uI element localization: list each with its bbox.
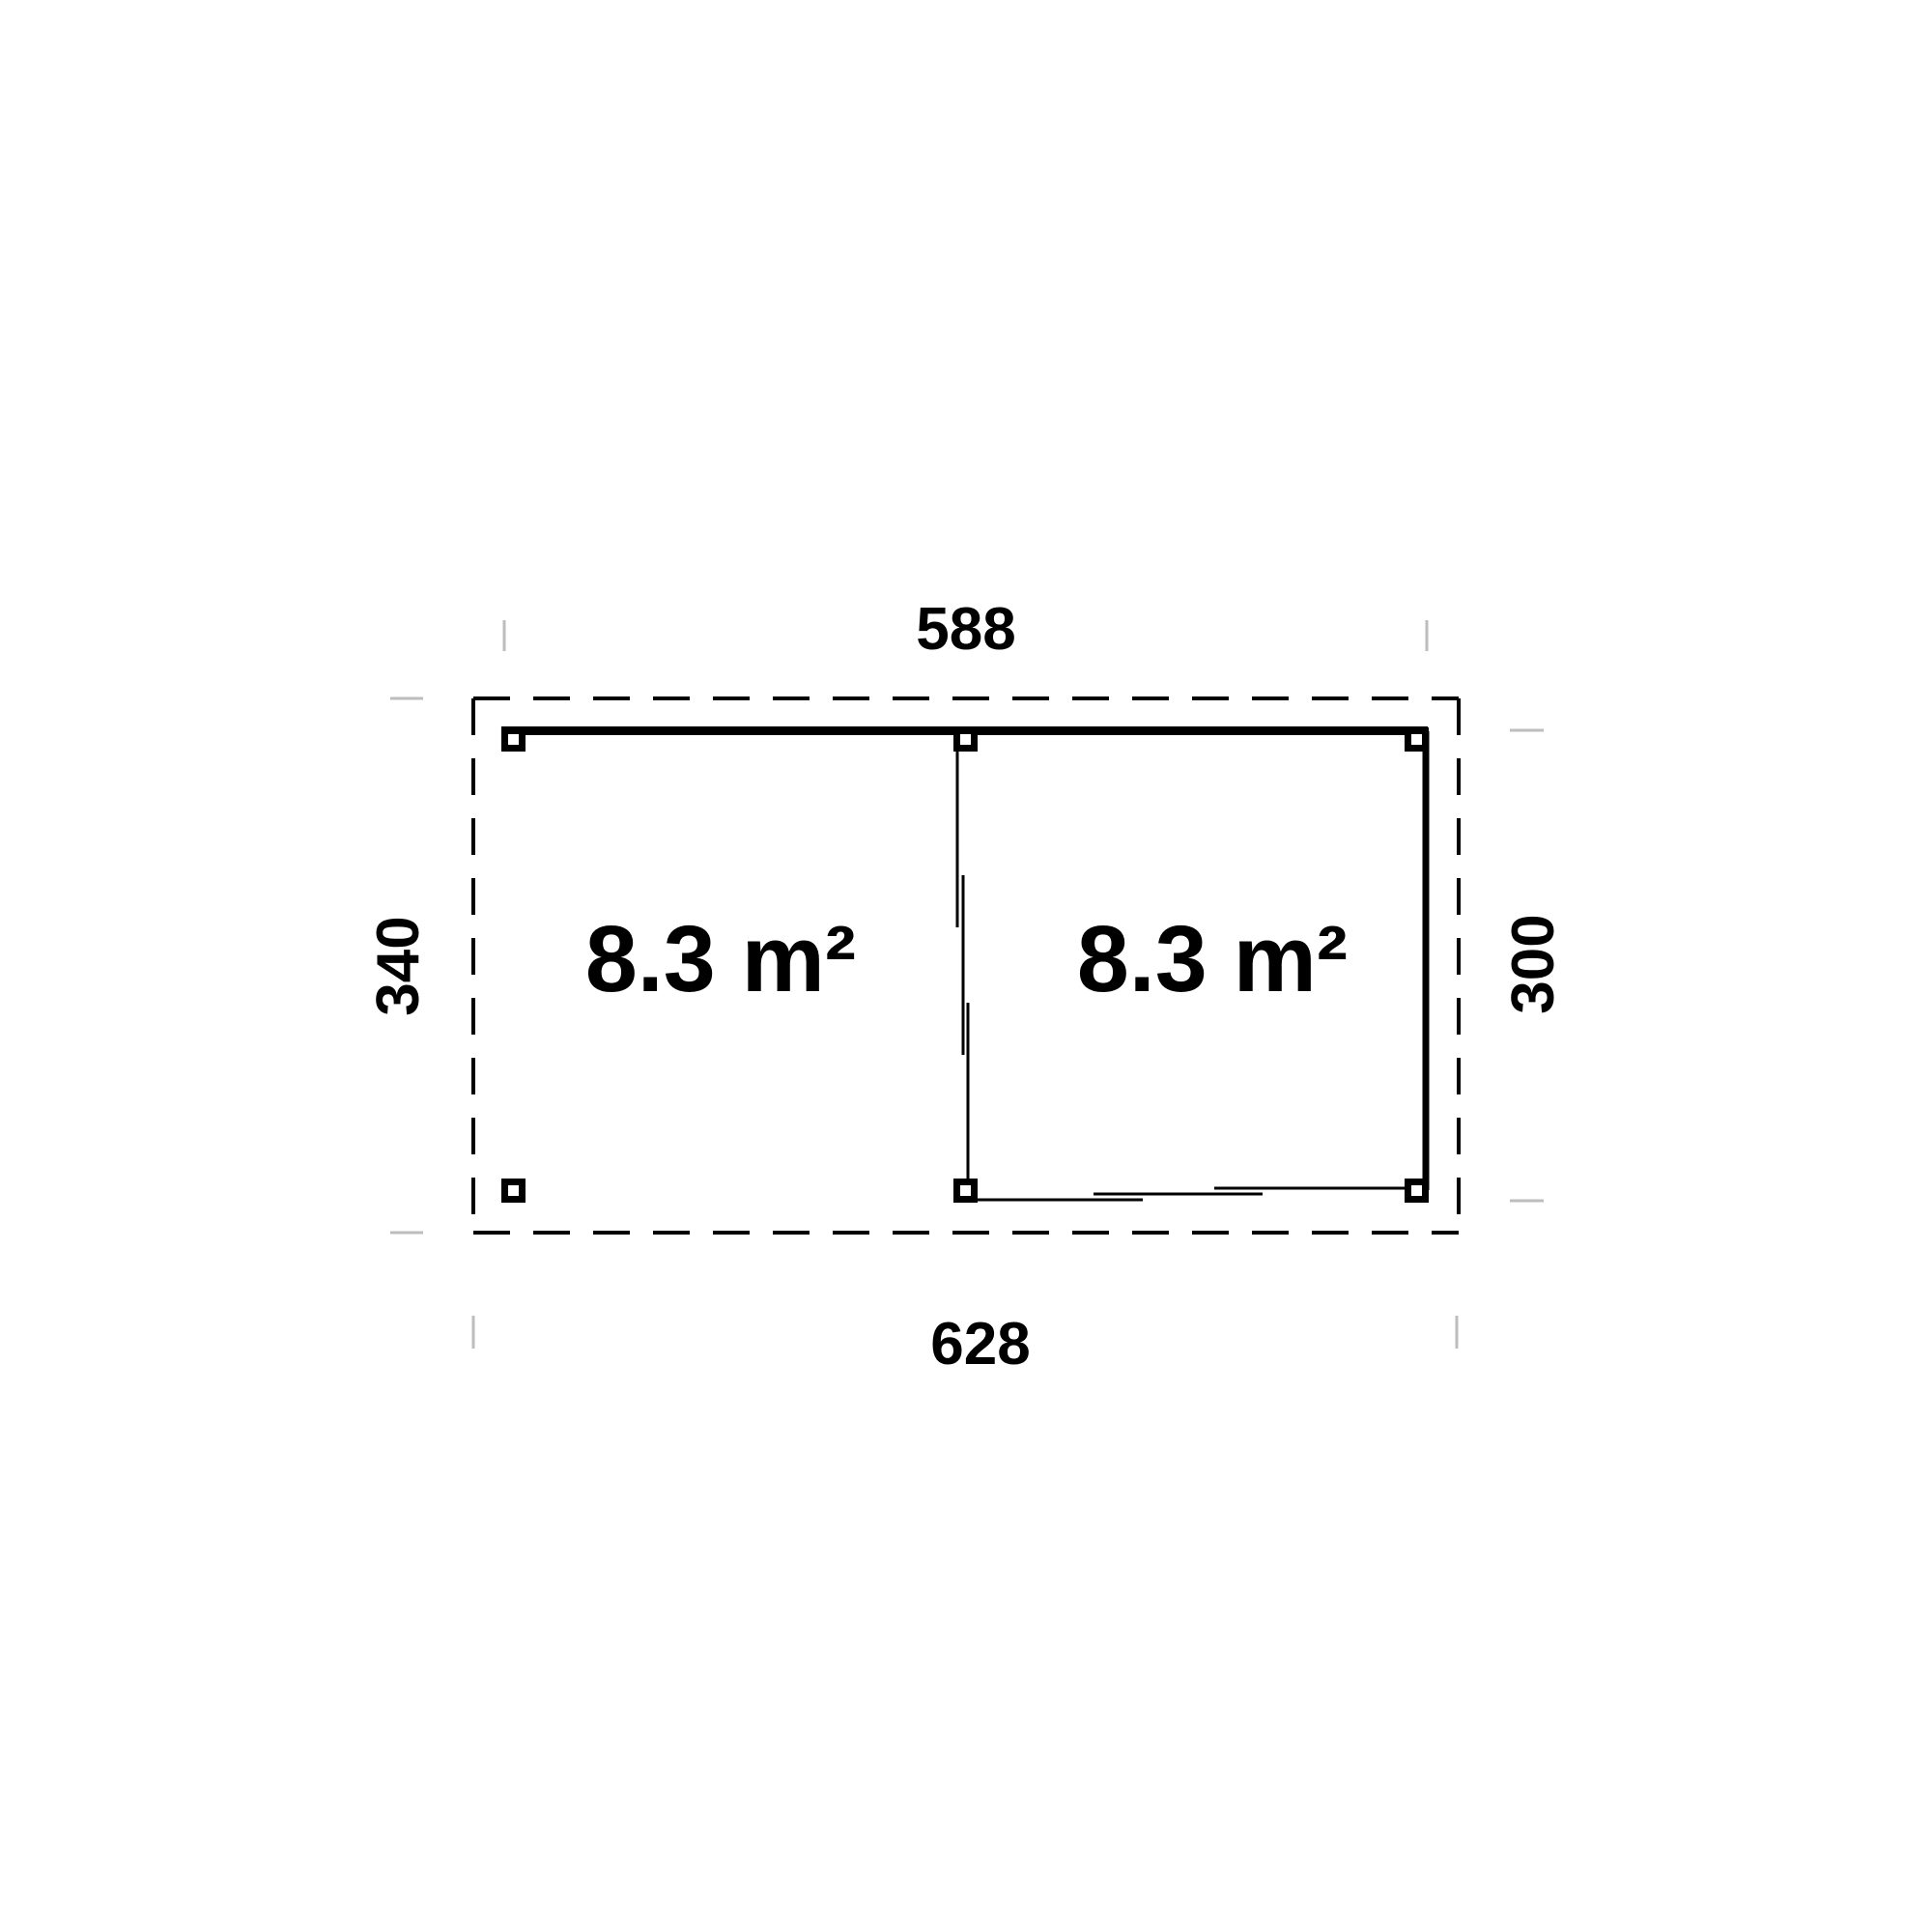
floor-plan-drawing: 588 628 340 300 8.3 m² 8.3 m² xyxy=(0,0,1932,1932)
dimension-label-bottom: 628 xyxy=(930,1311,1030,1378)
room-area-label-right: 8.3 m² xyxy=(1077,906,1348,1011)
post-top-center-icon xyxy=(957,731,975,749)
post-top-right-icon xyxy=(1408,731,1426,749)
post-bottom-center-icon xyxy=(957,1182,975,1200)
post-bottom-left-icon xyxy=(505,1182,523,1200)
post-top-left-icon xyxy=(505,731,523,749)
room-area-label-left: 8.3 m² xyxy=(585,906,856,1011)
floor-plan-page: 588 628 340 300 8.3 m² 8.3 m² xyxy=(0,0,1932,1932)
post-bottom-right-icon xyxy=(1408,1182,1426,1200)
room-area-labels: 8.3 m² 8.3 m² xyxy=(585,906,1348,1011)
dimension-labels: 588 628 340 300 xyxy=(365,596,1567,1378)
dimension-label-left: 340 xyxy=(365,916,432,1015)
dimension-label-top: 588 xyxy=(916,596,1015,663)
dimension-label-right: 300 xyxy=(1500,914,1567,1013)
